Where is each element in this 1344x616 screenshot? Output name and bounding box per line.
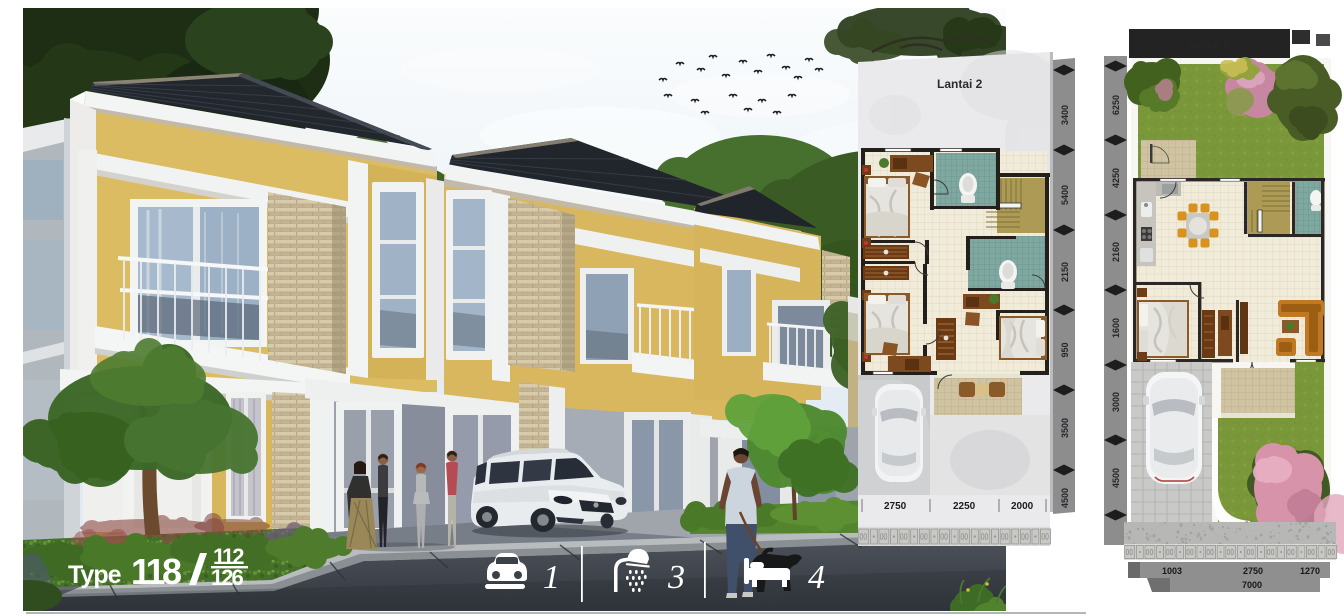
svg-text:2750: 2750 <box>1243 566 1263 576</box>
svg-text:5400: 5400 <box>1060 185 1070 205</box>
svg-text:4250: 4250 <box>1111 168 1121 188</box>
svg-text:2000: 2000 <box>1011 501 1034 512</box>
svg-text:3: 3 <box>667 559 685 596</box>
svg-text:Type: Type <box>68 561 122 589</box>
svg-text:3500: 3500 <box>1060 418 1070 438</box>
svg-text:2250: 2250 <box>953 501 976 512</box>
svg-text:118: 118 <box>131 551 181 592</box>
svg-text:4: 4 <box>808 559 825 596</box>
svg-text:4500: 4500 <box>1060 488 1070 508</box>
svg-text:4500: 4500 <box>1111 468 1121 488</box>
svg-text:Lantai 2: Lantai 2 <box>937 77 983 91</box>
svg-text:2150: 2150 <box>1060 262 1070 282</box>
svg-text:1: 1 <box>543 559 560 596</box>
svg-text:2750: 2750 <box>884 501 907 512</box>
svg-text:950: 950 <box>1060 342 1070 357</box>
svg-text:3400: 3400 <box>1060 105 1070 125</box>
svg-text:3000: 3000 <box>1111 392 1121 412</box>
svg-text:126: 126 <box>211 565 243 590</box>
svg-text:1600: 1600 <box>1111 318 1121 338</box>
svg-text:1003: 1003 <box>1162 566 1182 576</box>
svg-text:Lantai 1: Lantai 1 <box>1187 39 1229 51</box>
svg-text:7000: 7000 <box>1242 580 1262 590</box>
svg-text:6250: 6250 <box>1111 95 1121 115</box>
svg-text:1270: 1270 <box>1300 566 1320 576</box>
svg-text:2160: 2160 <box>1111 242 1121 262</box>
